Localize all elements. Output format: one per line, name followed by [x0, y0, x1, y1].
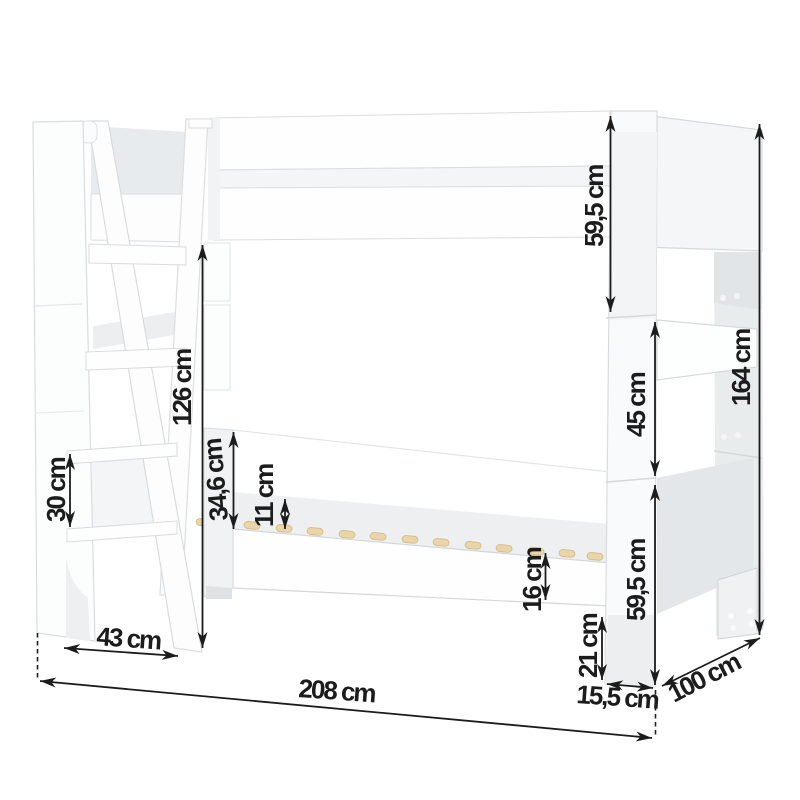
- svg-text:126 cm: 126 cm: [167, 349, 197, 426]
- svg-text:21 cm: 21 cm: [573, 613, 603, 678]
- svg-text:11 cm: 11 cm: [249, 464, 279, 527]
- svg-text:164 cm: 164 cm: [726, 329, 756, 406]
- svg-text:59,5 cm: 59,5 cm: [579, 165, 609, 247]
- svg-text:43 cm: 43 cm: [96, 621, 163, 655]
- svg-text:59,5 cm: 59,5 cm: [621, 539, 651, 621]
- svg-text:45 cm: 45 cm: [621, 372, 651, 437]
- svg-text:208 cm: 208 cm: [298, 673, 377, 708]
- svg-text:16 cm: 16 cm: [517, 547, 547, 612]
- svg-text:30 cm: 30 cm: [41, 457, 71, 522]
- svg-text:15,5 cm: 15,5 cm: [576, 679, 660, 715]
